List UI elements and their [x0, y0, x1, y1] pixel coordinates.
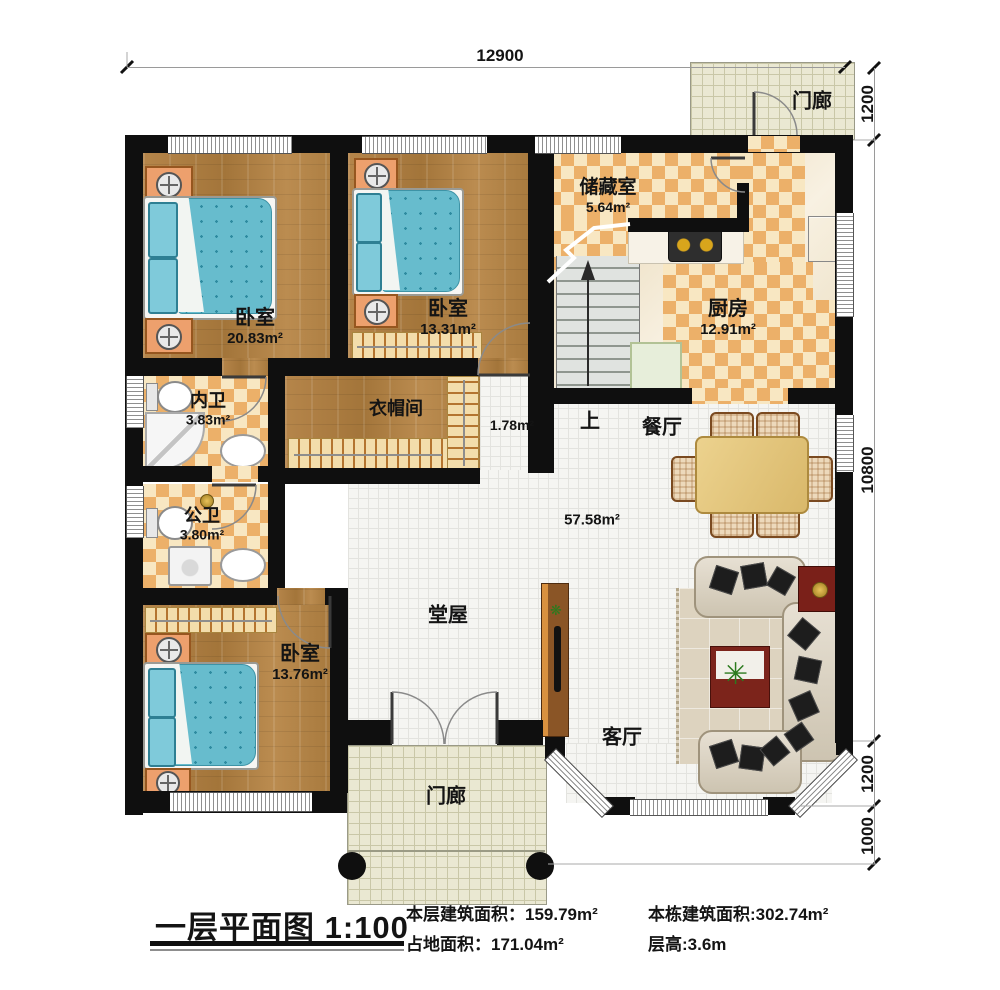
stat-value: 159.79m²: [525, 905, 598, 924]
wall-bath-right: [268, 373, 285, 603]
lamp-icon: [364, 299, 390, 325]
room-name: 厨房: [700, 298, 756, 321]
wall-hall-bottom: [497, 720, 543, 745]
wall-kitchen-bottom: [788, 388, 853, 404]
tv: [554, 626, 561, 692]
room-name: 公卫: [180, 506, 224, 527]
label-bedroom-top-mid: 卧室 13.31m²: [420, 298, 476, 338]
lamp-icon: [156, 637, 182, 663]
wardrobe-rack: [145, 607, 277, 633]
door-gap: [212, 466, 258, 482]
room-name: 门廊: [792, 91, 832, 114]
porch-column: [526, 852, 554, 880]
sink: [220, 548, 266, 582]
stat-label: 本栋建筑面积:: [648, 905, 756, 924]
wall-left: [125, 135, 143, 815]
stairs-up-label: 上: [580, 411, 600, 434]
window: [836, 213, 854, 317]
staircase: [556, 256, 640, 390]
side-cabinet: [798, 566, 840, 612]
door-gap: [478, 358, 528, 376]
label-porch-top: 门廊: [792, 91, 832, 114]
dining-table: [695, 436, 809, 514]
room-name: 堂屋: [428, 605, 468, 628]
room-name: 卧室: [272, 643, 328, 666]
room-area: 13.76m²: [272, 666, 328, 683]
dim-right-top: 1200: [858, 85, 878, 123]
pillow: [148, 668, 176, 718]
pillow: [356, 242, 382, 292]
nightstand: [145, 633, 191, 665]
room-name: 门廊: [426, 786, 466, 809]
window: [170, 792, 312, 812]
label-hallway-area: 1.78m²: [490, 417, 534, 433]
pillow: [356, 193, 382, 243]
drawing-scale: 1:100: [325, 910, 409, 945]
window: [836, 415, 854, 472]
wall-bedroom3-right: [330, 588, 348, 793]
plant-icon: ❋: [550, 602, 562, 619]
room-name: 衣帽间: [369, 399, 423, 420]
window: [126, 486, 144, 538]
stat-value: 302.74m²: [756, 905, 829, 924]
label-bath-ensuite: 内卫 3.83m²: [186, 391, 230, 428]
room-name: 卧室: [227, 307, 283, 330]
dim-right-main: 10800: [858, 446, 878, 493]
label-bedroom-top-left: 卧室 20.83m²: [227, 307, 283, 347]
door-gap: [692, 388, 788, 404]
stat-label: 层高:: [648, 935, 688, 954]
label-dining: 餐厅: [642, 417, 682, 440]
wall-storage-stub: [737, 183, 749, 232]
lamp-icon: [364, 163, 390, 189]
stat-floor-height: 层高:3.6m: [648, 930, 726, 955]
label-porch-bottom: 门廊: [426, 786, 466, 809]
label-storage: 储藏室 5.64m²: [579, 177, 636, 215]
wall-hall-bottom: [348, 720, 392, 745]
floor-kitchen-strip: [740, 153, 805, 265]
coffee-table: ✳: [710, 646, 770, 708]
nightstand: [354, 294, 398, 328]
label-bedroom-bottom-left: 卧室 13.76m²: [272, 643, 328, 683]
lamp-icon: [156, 324, 182, 350]
window: [126, 376, 144, 428]
room-name: 卧室: [420, 298, 476, 321]
door-gap: [277, 588, 325, 605]
room-name: 客厅: [602, 727, 642, 750]
stove: [668, 228, 722, 262]
pillow: [148, 717, 176, 767]
wall-storage-bottom: [628, 218, 748, 232]
door-gap: [222, 358, 268, 376]
room-area: 13.31m²: [420, 321, 476, 338]
pillow: [148, 202, 178, 258]
dim-top: 12900: [476, 46, 523, 66]
stat-floor-area: 本层建筑面积：159.79m²: [406, 900, 598, 925]
floor-plan: ✳ ❋: [0, 0, 1000, 990]
sink: [220, 434, 266, 468]
floor-kitchen-right: [803, 300, 835, 388]
wall-bedroom1-right: [330, 153, 348, 376]
door-gap: [748, 136, 800, 152]
plant-icon: ✳: [723, 657, 748, 692]
stat-label: 本层建筑面积：: [406, 905, 525, 924]
label-kitchen: 厨房 12.91m²: [700, 298, 756, 338]
room-name: 餐厅: [642, 417, 682, 440]
floor-storage: [548, 153, 748, 218]
drawing-title-text: 一层平面图: [155, 910, 315, 945]
dim-right-porch: 1000: [858, 817, 878, 855]
room-area: 5.64m²: [579, 199, 636, 215]
porch-column: [338, 852, 366, 880]
nightstand: [354, 158, 398, 192]
pillow: [148, 258, 178, 314]
wall-interior: [143, 358, 222, 376]
wall-interior: [348, 358, 478, 376]
wall-stairs-bottom: [548, 388, 640, 404]
room-area: 3.80m²: [180, 526, 224, 542]
label-living: 客厅: [602, 727, 642, 750]
label-main-hall: 堂屋: [428, 605, 468, 628]
room-name: 内卫: [186, 391, 230, 412]
lamp-icon: [156, 172, 182, 198]
stat-total-area: 本栋建筑面积:302.74m²: [648, 900, 828, 925]
sofa-pillow: [794, 656, 822, 684]
room-name: 储藏室: [579, 177, 636, 199]
cloak-rack-vertical: [447, 376, 479, 470]
gold-knob-icon: [812, 582, 828, 598]
label-stairs-up: 上: [580, 411, 600, 434]
title-underline-2: [150, 949, 404, 951]
window: [362, 136, 487, 154]
room-area: 20.83m²: [227, 330, 283, 347]
dim-line-top: [127, 67, 845, 68]
window: [168, 136, 292, 154]
room-area: 1.78m²: [490, 417, 534, 433]
nightstand: [145, 318, 193, 354]
room-area: 57.58m²: [564, 511, 620, 528]
wall-cloak-bottom: [285, 468, 480, 484]
title-underline: [150, 941, 404, 946]
stat-land-area: 占地面积：171.04m²: [406, 930, 564, 955]
floor-porch-bottom: [347, 745, 547, 905]
cloak-rack: [288, 438, 448, 470]
dim-right-bay: 1200: [858, 755, 878, 793]
wall-kitchen-bottom: [640, 388, 692, 404]
label-cloakroom: 衣帽间: [369, 399, 423, 420]
porch-step-line: [347, 850, 545, 852]
bay-window: [630, 799, 768, 816]
wall-bath-divider: [143, 466, 212, 482]
kitchen-cabinet: [630, 342, 682, 390]
label-bath-public: 公卫 3.80m²: [180, 506, 224, 543]
tv-cabinet: ❋: [541, 583, 569, 737]
room-area: 12.91m²: [700, 321, 756, 338]
stat-value: 3.6m: [688, 935, 727, 954]
room-area: 3.83m²: [186, 411, 230, 427]
wall-interior: [143, 588, 277, 605]
window: [535, 136, 621, 154]
sofa-pillow: [740, 562, 768, 590]
stat-value: 171.04m²: [491, 935, 564, 954]
washing-machine: [168, 546, 212, 586]
kitchen-sink: [808, 216, 838, 262]
label-hall-area: 57.58m²: [564, 511, 620, 528]
stat-label: 占地面积：: [406, 935, 491, 954]
